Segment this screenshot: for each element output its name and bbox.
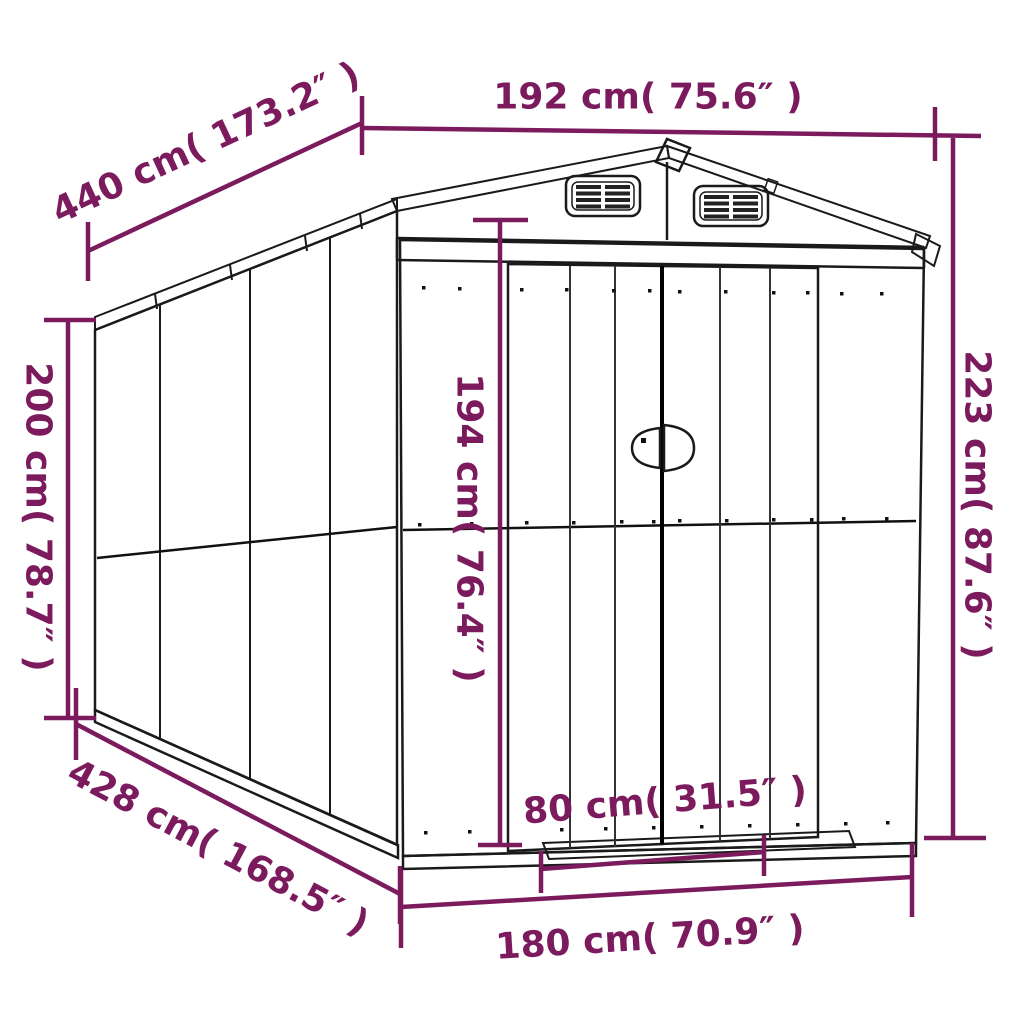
shed-drawing [95, 139, 940, 869]
vent-left [566, 176, 640, 216]
roof-fascia-joint [305, 236, 307, 251]
dim-door-width: 80 cm( 31.5″ ) [522, 769, 809, 893]
dim-roof-width-line [362, 128, 981, 136]
roof-finial [656, 139, 690, 171]
dim-base-width-line [401, 877, 912, 907]
door-right [662, 266, 818, 844]
door-handle [632, 425, 694, 471]
shed-dimension-diagram: 440 cm( 173.2″ ) 192 cm( 75.6″ ) 223 cm(… [0, 0, 1024, 1024]
dim-base-depth: 428 cm( 168.5″ ) [61, 688, 400, 945]
left-wall [95, 211, 397, 845]
dim-wall-height-label: 200 cm( 78.7″ ) [18, 362, 59, 671]
diagram-svg: 440 cm( 173.2″ ) 192 cm( 75.6″ ) 223 cm(… [0, 0, 1024, 1024]
dim-wall-height: 200 cm( 78.7″ ) [18, 320, 97, 718]
dim-roof-width-label: 192 cm( 75.6″ ) [493, 77, 802, 118]
handle-keyhole [641, 438, 646, 443]
dim-base-width-label: 180 cm( 70.9″ ) [494, 908, 805, 968]
dim-door-width-label: 80 cm( 31.5″ ) [522, 769, 809, 832]
gable-face [397, 159, 924, 268]
dim-door-height-label: 194 cm( 76.4″ ) [449, 373, 490, 682]
left-wall-mid-seam [97, 527, 397, 558]
vent-right [694, 186, 768, 226]
door-left [508, 264, 662, 851]
dim-base-depth-label: 428 cm( 168.5″ ) [61, 751, 376, 944]
roof-side-fascia [95, 199, 397, 330]
dim-total-height-label: 223 cm( 87.6″ ) [957, 350, 998, 659]
dim-roof-depth: 440 cm( 173.2″ ) [46, 54, 366, 281]
dim-door-height: 194 cm( 76.4″ ) [449, 220, 529, 845]
